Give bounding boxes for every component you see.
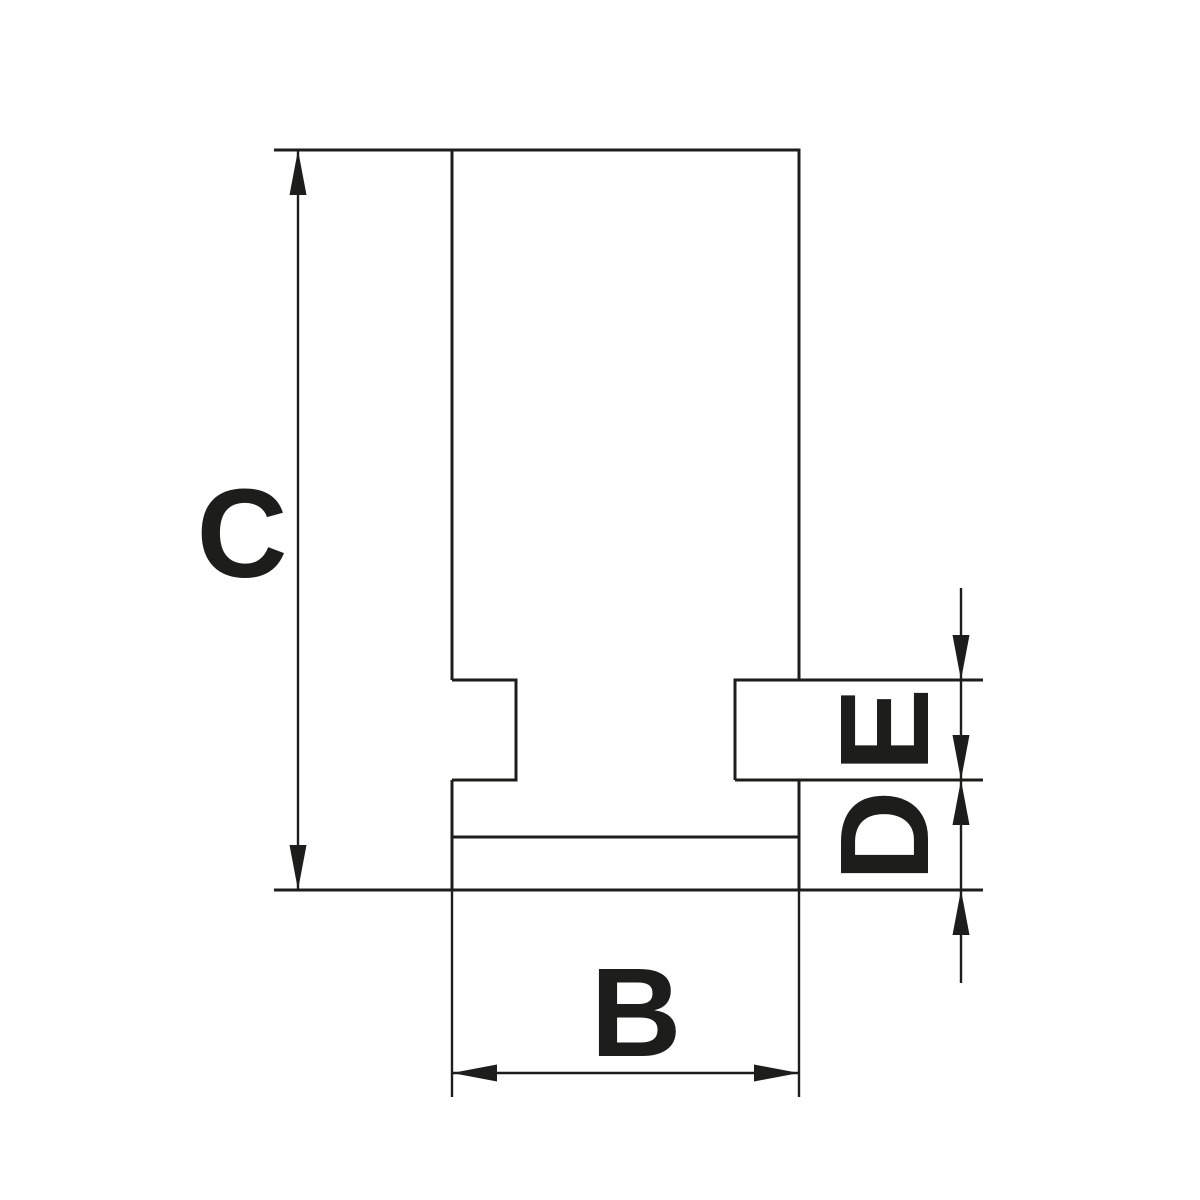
technical-drawing-canvas: C B E D (0, 0, 1200, 1200)
b-arrow-left-icon (452, 1065, 497, 1082)
part-outline (274, 150, 983, 890)
c-arrow-down-icon (290, 845, 307, 890)
e-arrow-up-icon (953, 780, 970, 825)
dimension-c-label: C (197, 463, 288, 604)
dimension-de: E D (814, 588, 970, 983)
d-arrow-up-icon (953, 890, 970, 935)
dimension-b-label: B (591, 942, 682, 1083)
b-arrow-right-icon (754, 1065, 799, 1082)
c-arrow-up-icon (290, 150, 307, 195)
dimension-c: C (197, 150, 307, 890)
chuck-jaw-dimension-drawing: C B E D (0, 0, 1200, 1200)
dimension-b: B (452, 890, 799, 1097)
part-left-notch (452, 680, 516, 780)
e-arrow-down-icon (953, 635, 970, 680)
dimension-e-label: E (814, 688, 955, 772)
d-arrow-down-icon (953, 735, 970, 780)
part-top-and-right-edge (274, 150, 799, 680)
dimension-d-label: D (814, 791, 955, 882)
